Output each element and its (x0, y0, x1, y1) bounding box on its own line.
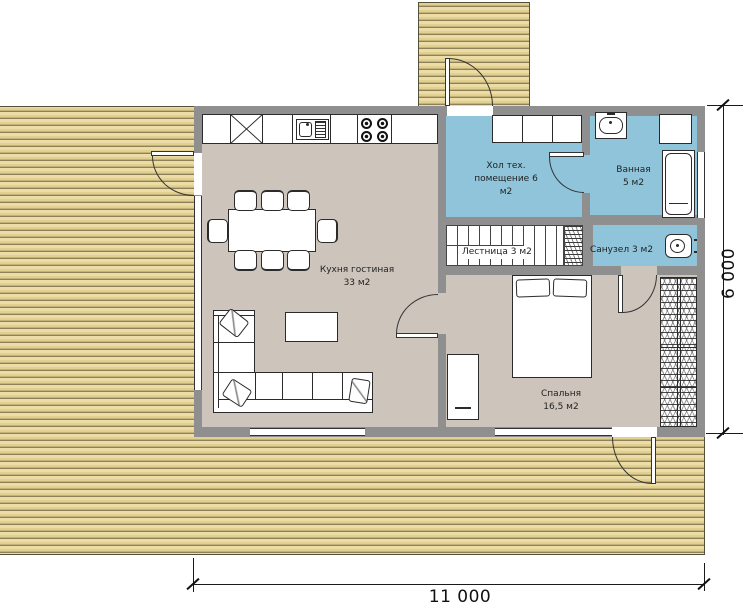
window-bathroom-east (697, 152, 705, 218)
stair-step (534, 225, 535, 266)
opening-wc-bedroom (621, 266, 657, 275)
sink-faucet (306, 123, 309, 126)
coffee-table (285, 312, 338, 342)
room-label-kitchen-living: Кухня гостиная 33 м2 (287, 264, 427, 290)
counter-divider (357, 114, 358, 144)
door-left (151, 151, 194, 156)
dim-height-ext-bottom (706, 433, 743, 434)
stove-burner (377, 131, 388, 142)
room-label-stairs: Лестница 3 м2 (460, 246, 534, 259)
dim-width-ext-right (704, 563, 705, 591)
chair (317, 219, 338, 243)
sofa-line (255, 373, 256, 399)
room-label-bathroom: Ванная 5 м2 (586, 164, 681, 190)
sofa-line (214, 342, 254, 343)
toilet-mark (694, 251, 697, 253)
door-bedroom-deck (651, 437, 656, 484)
bathtub-drain (669, 203, 688, 204)
window-left-wall (194, 196, 202, 390)
dim-width-ext-left (193, 558, 194, 592)
chair (261, 250, 284, 271)
door-hall-bath (549, 152, 584, 157)
window-living-south (250, 428, 365, 436)
stove-burner (377, 118, 388, 129)
chair (234, 190, 257, 211)
sink-drain-rack (315, 121, 326, 138)
sofa-line (282, 373, 283, 399)
room-label-bedroom: Спальня 16,5 м2 (491, 388, 631, 414)
dim-height-label: 6 000 (719, 228, 739, 318)
chair (261, 190, 284, 211)
hanger-rack (564, 225, 583, 266)
toilet-flush (676, 244, 679, 247)
dim-width-label: 11 000 (380, 587, 540, 605)
sofa-line (218, 315, 219, 408)
cabinet-divider (552, 115, 553, 143)
dim-height-ext-top (707, 105, 743, 106)
counter-divider (292, 114, 293, 144)
stair-step (545, 225, 546, 266)
sofa-line (342, 373, 343, 399)
chair (287, 190, 310, 211)
opening-entrance (447, 106, 493, 116)
room-label-hall-tech: Хол тех. помещение 6 м2 (446, 160, 566, 199)
washbasin-bowl (599, 117, 623, 134)
cabinet-divider (522, 115, 523, 143)
pillow (348, 378, 371, 405)
counter-divider (330, 114, 331, 144)
deck-bottom (0, 437, 705, 555)
floor-plan: Кухня гостиная 33 м2 Хол тех. помещение … (0, 0, 744, 605)
bed-pillow (516, 278, 551, 297)
fridge (230, 114, 263, 144)
wardrobe-shelf (660, 347, 697, 348)
washbasin-faucet (609, 121, 612, 124)
stove-burner (361, 118, 372, 129)
wardrobe-rail (680, 278, 681, 426)
window-bedroom-south (495, 428, 612, 436)
bathroom-cabinet (659, 114, 692, 144)
chair (234, 250, 257, 271)
toilet-mark (694, 239, 697, 241)
wardrobe (660, 277, 697, 427)
opening-bedroom-deck (612, 427, 657, 437)
stove-burner (361, 131, 372, 142)
dim-width-line (193, 584, 705, 585)
counter-divider (391, 114, 392, 144)
washbasin-tap (607, 112, 615, 115)
wardrobe-shelf (660, 387, 697, 388)
door-living-bedroom (396, 333, 438, 338)
room-label-wc: Санузел 3 м2 (590, 244, 653, 257)
opening-living-bedroom (438, 293, 446, 334)
door-wc-bedroom (618, 275, 623, 313)
bed-pillow (553, 278, 588, 297)
door-entrance (445, 58, 450, 106)
dresser-handle (455, 407, 471, 409)
sofa-line (312, 373, 313, 399)
stair-step (556, 225, 557, 266)
dresser (447, 354, 479, 420)
chair (207, 219, 228, 243)
wardrobe-rail (677, 278, 678, 426)
opening-left-door (194, 153, 202, 195)
hall-cabinets (492, 115, 582, 143)
dining-table (228, 209, 316, 252)
